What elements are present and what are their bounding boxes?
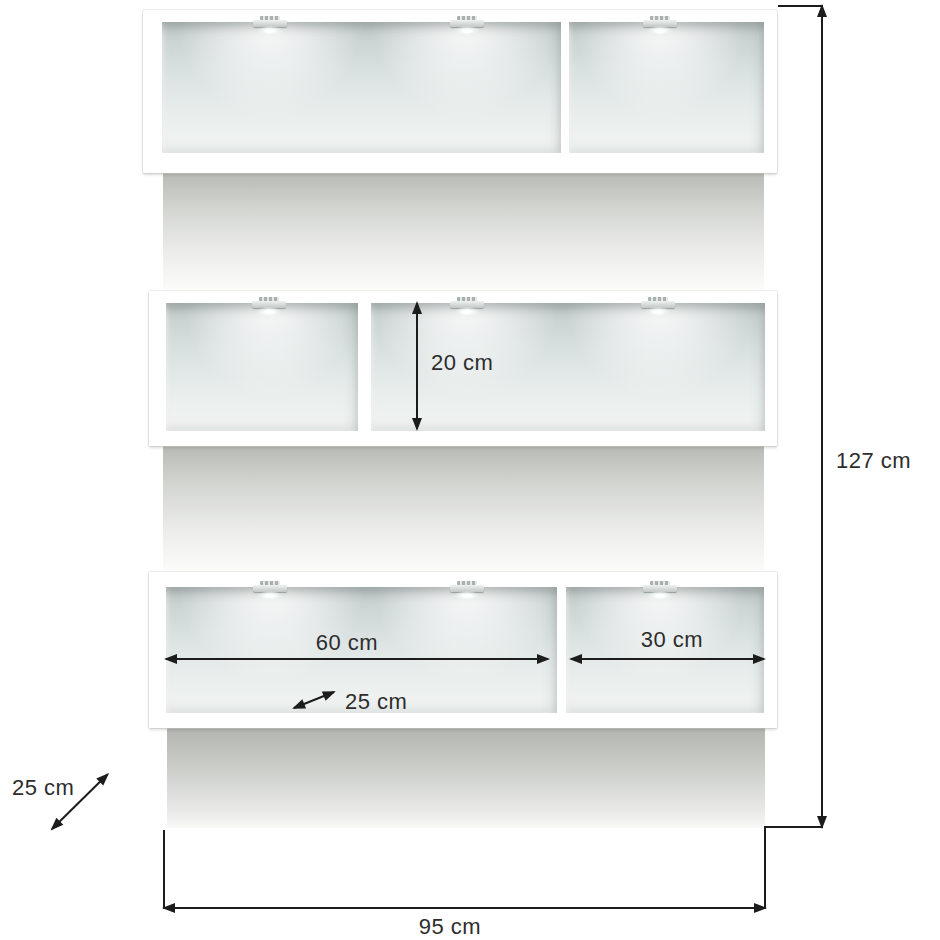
led-light-icon [253,585,287,592]
dimension-arrow-inner-height [416,303,418,429]
led-light-icon [252,301,286,308]
dimension-arrow-inner-width-left [166,658,548,660]
led-light-icon [450,585,484,592]
dimension-arrow-total-width [164,907,765,909]
extension-line-right [764,826,766,909]
wall-panel-upper [163,173,764,291]
dimension-label-total-width: 95 cm [419,914,481,940]
dimension-arrow-inner-width-right [571,658,764,660]
dimension-arrow-total-height [821,6,823,827]
led-light-icon [450,20,484,27]
extension-line-bottom-right [765,826,823,828]
dimension-label-inner-height: 20 cm [431,350,493,376]
dimension-label-inner-width-left: 60 cm [316,630,378,656]
wall-panel-middle [163,446,764,572]
led-light-icon [641,301,675,308]
led-light-icon [450,301,484,308]
compartment-top-right [569,22,764,153]
compartment-top-left [162,22,561,153]
compartment-middle-left [166,303,358,431]
wall-panel-lower [167,728,765,828]
led-light-icon [253,20,287,27]
extension-line-left [163,830,165,909]
dimension-label-total-height: 127 cm [836,448,911,474]
product-dimension-diagram: 127 cm 95 cm 20 cm 60 cm 30 cm 25 cm 25 … [0,0,940,940]
led-light-icon [643,20,677,27]
dimension-label-inner-depth: 25 cm [345,689,407,715]
dimension-label-inner-width-right: 30 cm [641,627,703,653]
dimension-label-depth: 25 cm [12,775,74,801]
led-light-icon [643,585,677,592]
